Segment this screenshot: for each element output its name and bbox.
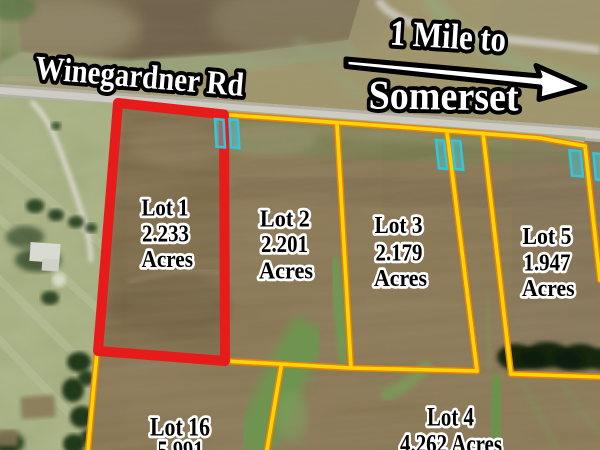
svg-text:Lot 3: Lot 3 xyxy=(375,213,423,239)
svg-text:4.262 Acres: 4.262 Acres xyxy=(400,429,502,450)
svg-text:Lot 2: Lot 2 xyxy=(260,206,310,232)
svg-text:2.233: 2.233 xyxy=(142,222,189,248)
svg-text:Somerset: Somerset xyxy=(368,72,519,120)
svg-text:Acres: Acres xyxy=(374,266,427,292)
svg-text:Acres: Acres xyxy=(142,247,194,273)
svg-text:1 Mile to: 1 Mile to xyxy=(389,13,507,60)
svg-text:Lot 5: Lot 5 xyxy=(523,224,572,250)
svg-text:Lot 4: Lot 4 xyxy=(427,402,474,432)
svg-text:Acres: Acres xyxy=(259,259,313,285)
svg-text:2.179: 2.179 xyxy=(376,241,423,267)
svg-text:5.991: 5.991 xyxy=(158,436,204,450)
svg-text:Acres: Acres xyxy=(522,276,575,302)
svg-text:Lot 1: Lot 1 xyxy=(142,196,189,222)
svg-text:1.947: 1.947 xyxy=(524,251,571,277)
svg-text:2.201: 2.201 xyxy=(261,232,308,258)
